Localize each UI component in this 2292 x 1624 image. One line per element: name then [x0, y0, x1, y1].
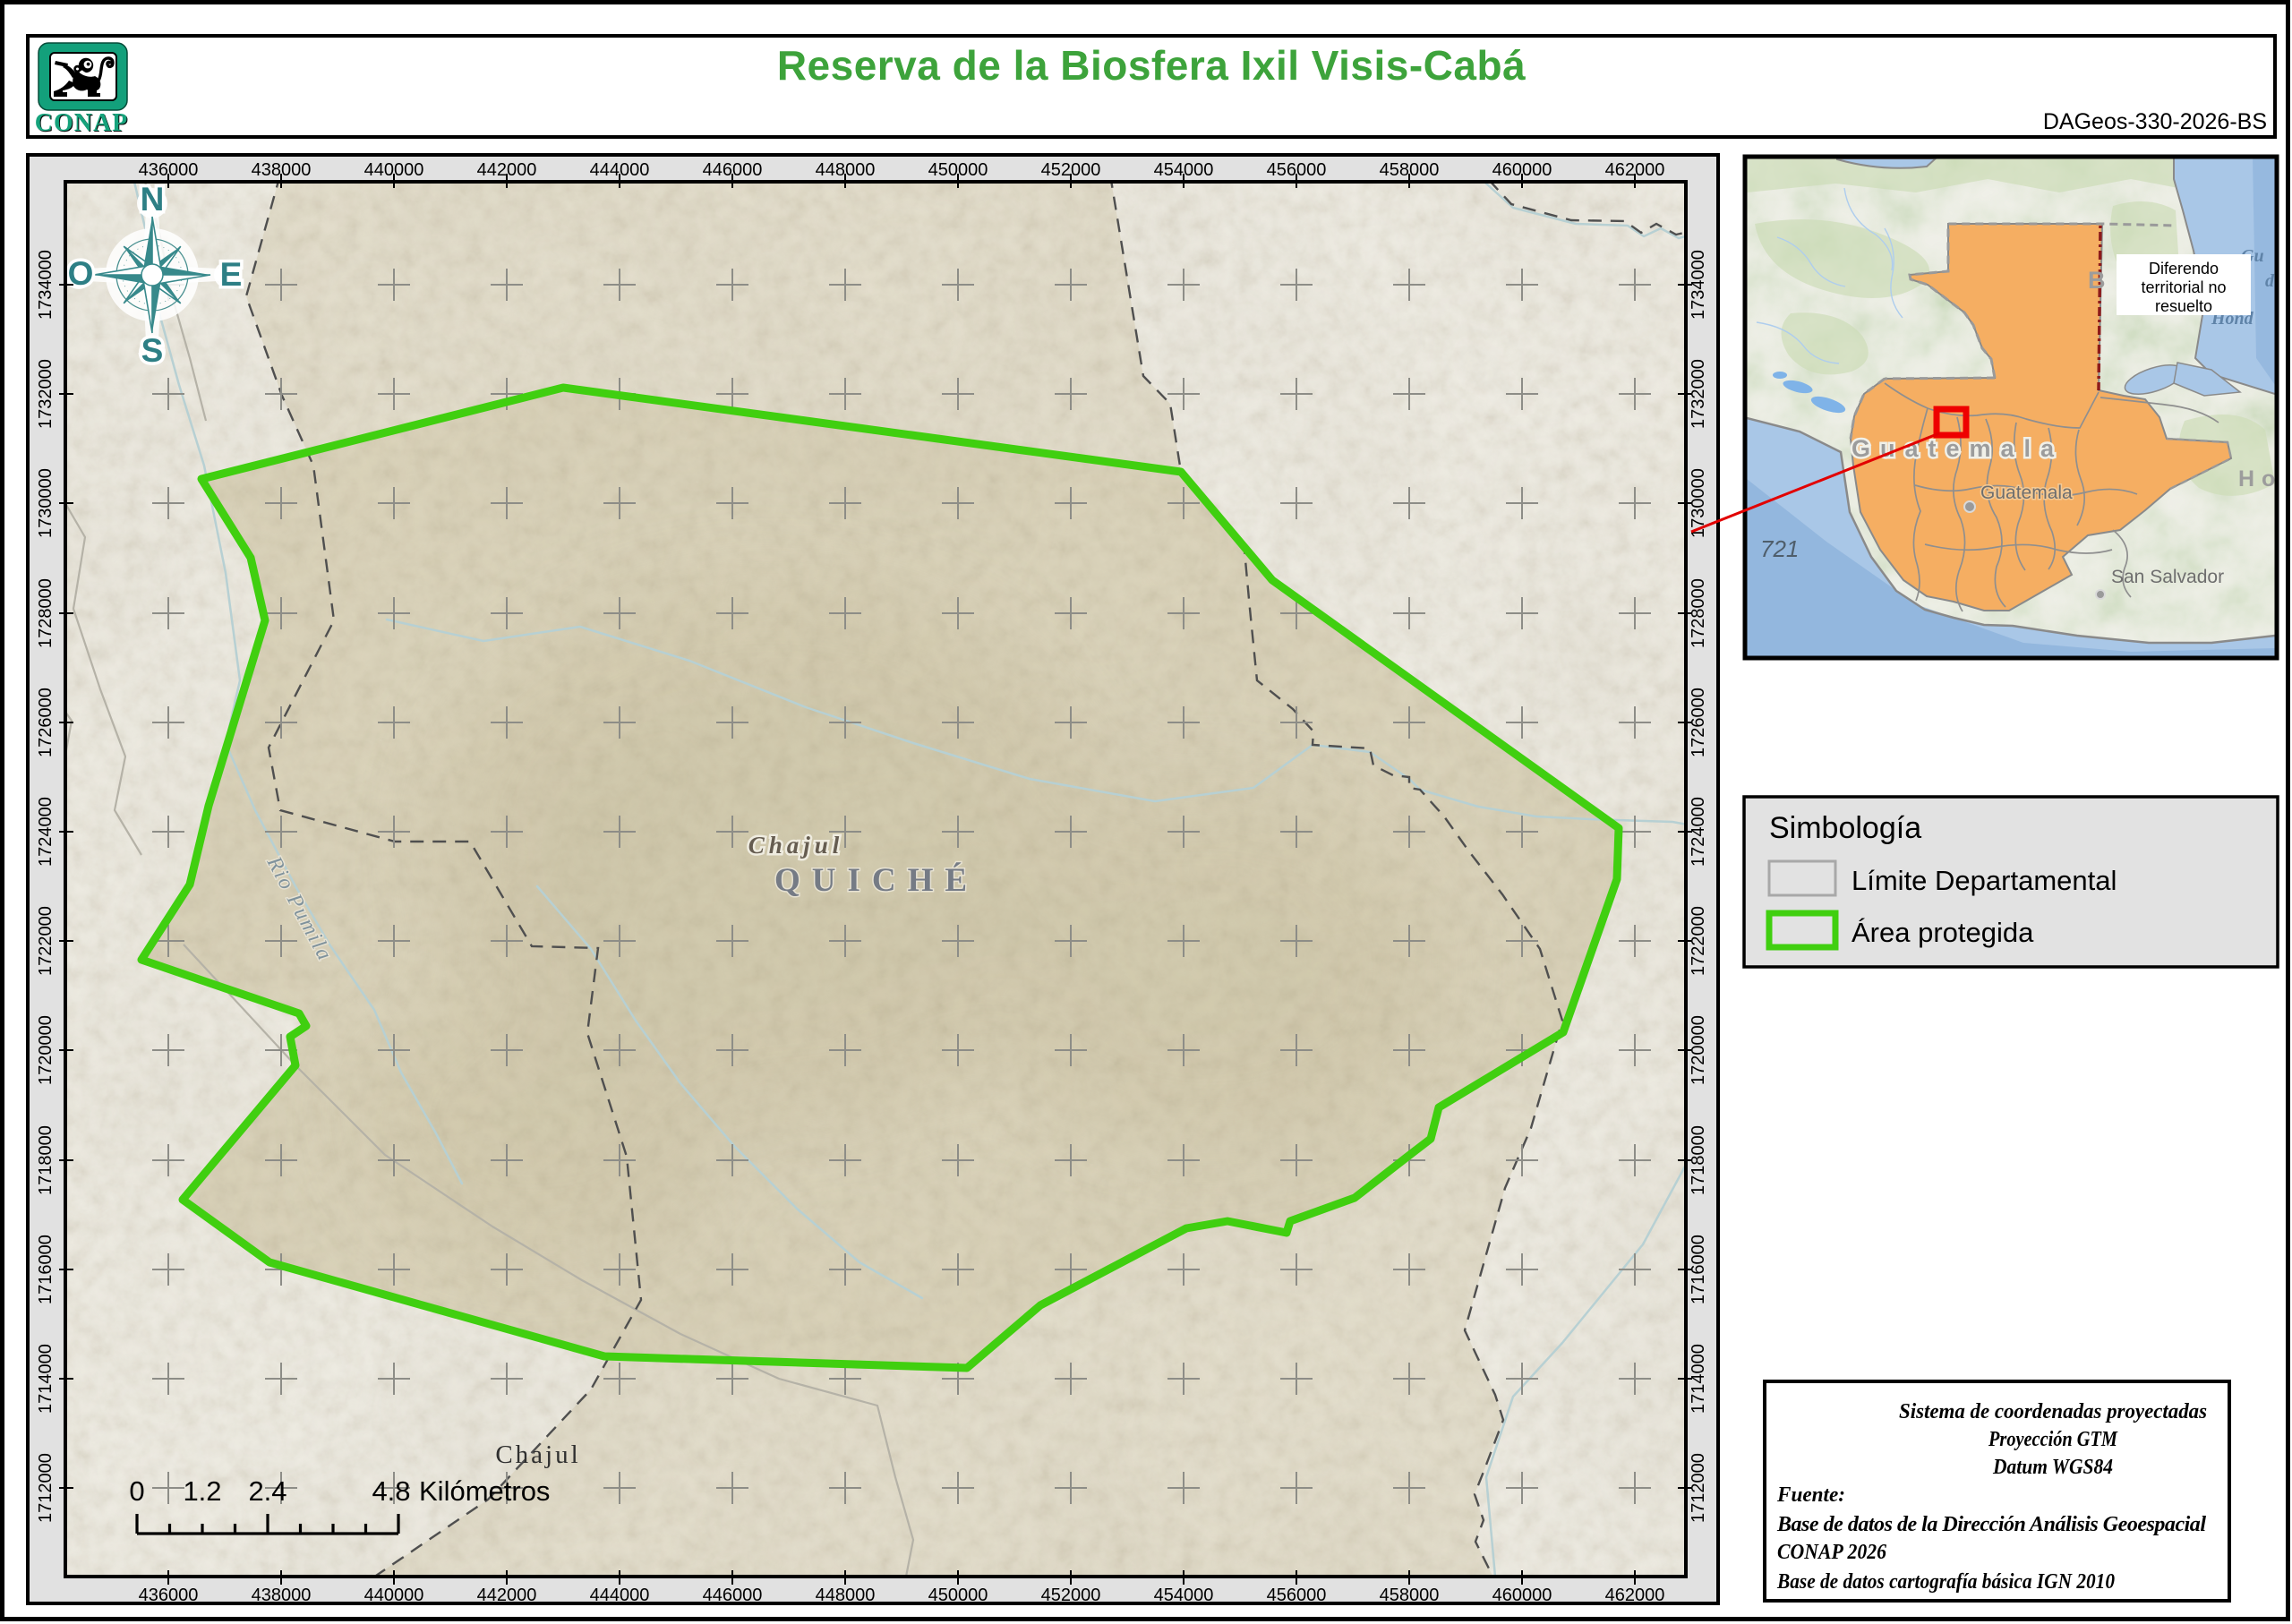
- svg-text:450000: 450000: [928, 160, 988, 180]
- svg-text:456000: 456000: [1267, 1586, 1327, 1605]
- svg-text:E: E: [220, 256, 243, 293]
- svg-text:San Salvador: San Salvador: [2111, 567, 2224, 587]
- svg-text:462000: 462000: [1605, 1586, 1665, 1605]
- svg-text:456000: 456000: [1267, 160, 1327, 180]
- svg-text:d: d: [2265, 271, 2275, 291]
- svg-text:460000: 460000: [1492, 1586, 1552, 1605]
- svg-text:Chajul: Chajul: [748, 832, 844, 859]
- svg-text:460000: 460000: [1492, 160, 1552, 180]
- svg-text:444000: 444000: [590, 160, 650, 180]
- svg-text:4.8: 4.8: [372, 1475, 410, 1507]
- svg-text:450000: 450000: [928, 1586, 988, 1605]
- svg-text:territorial no: territorial no: [2141, 278, 2226, 296]
- svg-text:0: 0: [129, 1475, 144, 1507]
- svg-text:1728000: 1728000: [1689, 578, 1708, 648]
- svg-text:Simbología: Simbología: [1769, 811, 1921, 845]
- svg-text:458000: 458000: [1380, 1586, 1440, 1605]
- svg-text:Reserva de la Biosfera Ixil Vi: Reserva de la Biosfera Ixil Visis-Cabá: [777, 42, 1526, 89]
- svg-text:Sistema de coordenadas proyect: Sistema de coordenadas proyectadas: [1899, 1400, 2207, 1423]
- svg-text:1712000: 1712000: [36, 1453, 56, 1523]
- svg-text:1.2: 1.2: [183, 1475, 221, 1507]
- svg-text:436000: 436000: [139, 160, 199, 180]
- svg-text:1716000: 1716000: [36, 1235, 56, 1304]
- svg-text:1732000: 1732000: [1689, 359, 1708, 429]
- svg-text:454000: 454000: [1154, 160, 1214, 180]
- svg-text:1724000: 1724000: [1689, 797, 1708, 867]
- svg-text:1712000: 1712000: [1689, 1453, 1708, 1523]
- svg-text:CONAP 2026: CONAP 2026: [1777, 1541, 1886, 1564]
- svg-text:442000: 442000: [477, 1586, 537, 1605]
- svg-text:DAGeos-330-2026-BS: DAGeos-330-2026-BS: [2043, 109, 2267, 134]
- svg-text:resuelto: resuelto: [2155, 297, 2212, 315]
- svg-text:721: 721: [1760, 535, 1799, 562]
- svg-text:N: N: [141, 181, 165, 218]
- svg-text:Datum WGS84: Datum WGS84: [1992, 1456, 2113, 1479]
- svg-text:458000: 458000: [1380, 160, 1440, 180]
- svg-text:Kilómetros: Kilómetros: [419, 1475, 550, 1507]
- svg-text:438000: 438000: [252, 1586, 312, 1605]
- svg-text:1718000: 1718000: [1689, 1125, 1708, 1195]
- svg-text:448000: 448000: [816, 160, 876, 180]
- svg-text:438000: 438000: [252, 160, 312, 180]
- svg-text:440000: 440000: [364, 1586, 424, 1605]
- svg-text:1726000: 1726000: [36, 688, 56, 757]
- svg-text:1714000: 1714000: [1689, 1344, 1708, 1414]
- svg-text:452000: 452000: [1041, 1586, 1101, 1605]
- svg-text:454000: 454000: [1154, 1586, 1214, 1605]
- svg-text:446000: 446000: [703, 1586, 763, 1605]
- svg-text:440000: 440000: [364, 160, 424, 180]
- svg-text:1720000: 1720000: [36, 1015, 56, 1085]
- svg-text:1730000: 1730000: [36, 468, 56, 538]
- svg-text:Base de datos cartografía bási: Base de datos cartografía básica IGN 201…: [1776, 1570, 2115, 1594]
- svg-text:1716000: 1716000: [1689, 1235, 1708, 1304]
- svg-text:448000: 448000: [816, 1586, 876, 1605]
- svg-text:436000: 436000: [139, 1586, 199, 1605]
- svg-text:Diferendo: Diferendo: [2149, 260, 2219, 278]
- svg-text:442000: 442000: [477, 160, 537, 180]
- svg-text:S: S: [141, 332, 164, 369]
- svg-text:CONAP: CONAP: [35, 109, 129, 137]
- svg-text:452000: 452000: [1041, 160, 1101, 180]
- svg-text:1722000: 1722000: [36, 906, 56, 976]
- svg-text:1724000: 1724000: [36, 797, 56, 867]
- svg-text:446000: 446000: [703, 160, 763, 180]
- svg-text:1718000: 1718000: [36, 1125, 56, 1195]
- svg-text:Fuente:: Fuente:: [1776, 1483, 1845, 1507]
- svg-text:1728000: 1728000: [36, 578, 56, 648]
- svg-text:2.4: 2.4: [248, 1475, 286, 1507]
- svg-text:Base de datos de la Dirección: Base de datos de la Dirección Análisis G…: [1776, 1513, 2206, 1536]
- svg-text:O: O: [68, 255, 94, 292]
- svg-text:1726000: 1726000: [1689, 688, 1708, 757]
- svg-text:1734000: 1734000: [1689, 250, 1708, 320]
- svg-text:Límite Departamental: Límite Departamental: [1852, 865, 2117, 896]
- svg-text:1732000: 1732000: [36, 359, 56, 429]
- svg-text:Guatemala: Guatemala: [1852, 435, 2064, 462]
- svg-text:QUICHÉ: QUICHÉ: [774, 861, 979, 899]
- svg-text:B: B: [2088, 267, 2106, 294]
- svg-text:Área protegida: Área protegida: [1852, 917, 2034, 948]
- svg-text:1722000: 1722000: [1689, 906, 1708, 976]
- svg-text:1714000: 1714000: [36, 1344, 56, 1414]
- svg-text:1734000: 1734000: [36, 250, 56, 320]
- svg-text:Chajul: Chajul: [495, 1440, 580, 1469]
- svg-text:Proyección GTM: Proyección GTM: [1988, 1428, 2118, 1451]
- svg-text:1720000: 1720000: [1689, 1015, 1708, 1085]
- svg-text:Guatemala: Guatemala: [1980, 483, 2073, 503]
- svg-text:462000: 462000: [1605, 160, 1665, 180]
- svg-text:444000: 444000: [590, 1586, 650, 1605]
